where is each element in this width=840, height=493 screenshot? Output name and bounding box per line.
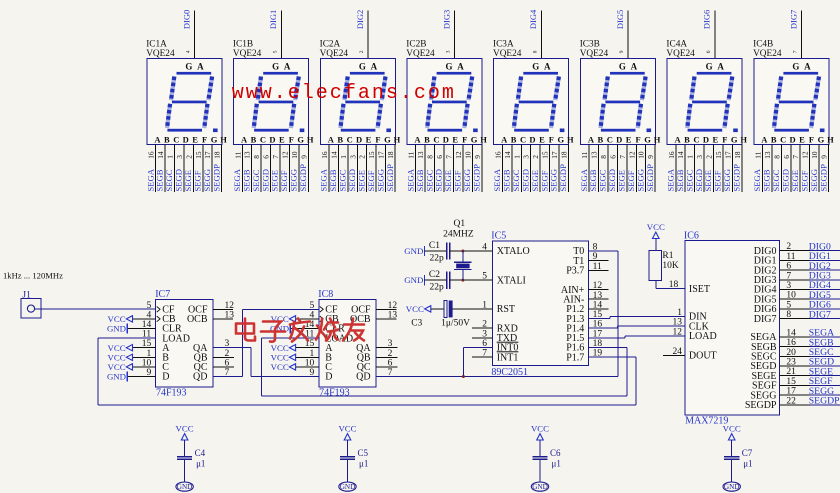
svg-text:DIG3: DIG3 — [442, 10, 452, 29]
svg-text:8: 8 — [252, 155, 261, 159]
svg-text:2: 2 — [705, 155, 714, 159]
svg-text:XTALI: XTALI — [497, 275, 526, 286]
svg-text:DIG1: DIG1 — [268, 10, 278, 29]
svg-text:SEGB: SEGB — [155, 169, 165, 191]
svg-text:74F193: 74F193 — [319, 387, 350, 398]
svg-text:C5: C5 — [358, 448, 369, 458]
svg-text:1: 1 — [166, 155, 175, 159]
svg-text:B: B — [771, 134, 777, 144]
svg-text:A: A — [414, 134, 421, 144]
svg-text:13: 13 — [673, 318, 683, 328]
svg-text:DOUT: DOUT — [689, 351, 717, 362]
svg-text:C: C — [260, 134, 266, 144]
svg-text:G A: G A — [359, 61, 379, 71]
svg-text:18: 18 — [560, 151, 569, 159]
svg-text:DIG2: DIG2 — [355, 10, 365, 29]
svg-text:A: A — [675, 134, 682, 144]
svg-text:D: D — [616, 134, 622, 144]
svg-text:SEGDP: SEGDP — [385, 164, 395, 192]
svg-text:6: 6 — [782, 155, 791, 159]
svg-text:VQE24: VQE24 — [146, 49, 175, 59]
svg-text:10: 10 — [786, 291, 796, 301]
svg-text:IC2B: IC2B — [406, 39, 426, 49]
svg-text:6: 6 — [706, 50, 712, 53]
svg-text:16: 16 — [320, 151, 329, 159]
svg-text:LOAD: LOAD — [689, 331, 717, 342]
svg-text:A: A — [501, 134, 508, 144]
svg-text:12: 12 — [454, 151, 463, 159]
svg-text:13: 13 — [416, 151, 425, 159]
svg-text:IC8: IC8 — [318, 289, 333, 300]
svg-text:H: H — [740, 134, 747, 144]
svg-text:A: A — [241, 134, 248, 144]
svg-text:B: B — [164, 134, 170, 144]
svg-text:18: 18 — [386, 151, 395, 159]
svg-text:D: D — [325, 372, 332, 383]
svg-text:1: 1 — [339, 155, 348, 159]
svg-text:VQE24: VQE24 — [320, 49, 349, 59]
svg-text:G: G — [471, 134, 478, 144]
svg-text:7: 7 — [444, 155, 453, 159]
svg-text:J1: J1 — [22, 291, 31, 301]
svg-text:17: 17 — [723, 151, 732, 159]
svg-text:C2: C2 — [429, 270, 440, 280]
svg-text:C: C — [780, 134, 786, 144]
svg-text:10: 10 — [290, 151, 299, 159]
svg-text:R1: R1 — [662, 251, 673, 261]
svg-text:www.elecfans.com: www.elecfans.com — [232, 82, 456, 105]
svg-text:SEGG: SEGG — [635, 169, 645, 192]
svg-text:B: B — [511, 134, 517, 144]
svg-text:SEGDP: SEGDP — [472, 164, 482, 192]
svg-text:3: 3 — [446, 50, 452, 53]
svg-text:7: 7 — [271, 155, 280, 159]
svg-text:VCC: VCC — [108, 352, 126, 362]
svg-text:μ1: μ1 — [196, 459, 205, 469]
svg-text:SEGG: SEGG — [722, 169, 732, 192]
svg-text:15: 15 — [786, 377, 796, 387]
svg-text:SEGDP: SEGDP — [732, 164, 742, 192]
svg-text:VCC: VCC — [108, 362, 126, 372]
svg-text:DIG4: DIG4 — [528, 9, 538, 29]
svg-text:DIG7: DIG7 — [809, 309, 831, 320]
svg-text:G: G — [384, 134, 391, 144]
svg-text:G: G — [297, 134, 304, 144]
svg-text:H: H — [567, 134, 574, 144]
svg-text:IC1B: IC1B — [233, 39, 253, 49]
svg-text:VCC: VCC — [271, 352, 289, 362]
svg-text:VCC: VCC — [723, 424, 741, 434]
svg-text:D: D — [790, 134, 796, 144]
svg-text:1: 1 — [677, 308, 682, 318]
svg-text:89C2051: 89C2051 — [491, 367, 528, 378]
svg-text:15: 15 — [541, 151, 550, 159]
svg-text:A: A — [328, 134, 335, 144]
svg-text:G A: G A — [272, 61, 292, 71]
svg-text:VCC: VCC — [647, 222, 665, 232]
svg-text:G: G — [644, 134, 651, 144]
svg-text:B: B — [337, 134, 343, 144]
svg-text:GND: GND — [177, 483, 193, 491]
svg-text:IC3A: IC3A — [493, 39, 514, 49]
svg-text:SEGDP: SEGDP — [558, 164, 568, 192]
svg-text:2: 2 — [359, 50, 365, 53]
svg-text:G A: G A — [706, 61, 726, 71]
svg-text:D: D — [356, 134, 362, 144]
svg-text:16: 16 — [667, 151, 676, 159]
svg-text:G A: G A — [185, 61, 205, 71]
svg-text:7: 7 — [786, 271, 791, 281]
svg-text:1: 1 — [686, 155, 695, 159]
svg-text:IC1A: IC1A — [146, 39, 167, 49]
svg-text:A: A — [761, 134, 768, 144]
svg-text:2: 2 — [184, 155, 193, 159]
svg-text:E: E — [279, 134, 285, 144]
svg-text:SEGG: SEGG — [809, 169, 819, 192]
svg-text:4: 4 — [186, 50, 192, 53]
svg-text:P3.7: P3.7 — [566, 266, 584, 277]
svg-text:11: 11 — [754, 151, 763, 158]
svg-text:VQE24: VQE24 — [580, 49, 609, 59]
svg-text:D: D — [529, 134, 535, 144]
svg-text:VQE24: VQE24 — [753, 49, 782, 59]
svg-text:μ1: μ1 — [743, 459, 752, 469]
svg-text:OCB: OCB — [187, 314, 208, 325]
svg-text:VCC: VCC — [271, 343, 289, 353]
svg-text:8: 8 — [772, 155, 781, 159]
svg-text:P1.7: P1.7 — [566, 352, 584, 363]
svg-text:10: 10 — [810, 151, 819, 159]
svg-text:C6: C6 — [550, 448, 561, 458]
svg-text:G: G — [211, 134, 218, 144]
svg-text:6: 6 — [435, 155, 444, 159]
svg-text:IC7: IC7 — [155, 289, 170, 300]
svg-text:VQE24: VQE24 — [493, 49, 522, 59]
svg-text:1kHz ... 120MHz: 1kHz ... 120MHz — [3, 270, 63, 280]
svg-text:SEGDP: SEGDP — [745, 400, 777, 411]
svg-text:8: 8 — [426, 155, 435, 159]
svg-text:B: B — [597, 134, 603, 144]
svg-text:GND: GND — [404, 246, 423, 256]
svg-text:8: 8 — [599, 155, 608, 159]
svg-text:GND: GND — [340, 483, 356, 491]
svg-text:14: 14 — [503, 151, 512, 159]
svg-text:11: 11 — [233, 151, 242, 158]
svg-text:9: 9 — [646, 155, 655, 159]
svg-text:F: F — [722, 134, 727, 144]
svg-text:G: G — [731, 134, 738, 144]
svg-text:D: D — [269, 134, 275, 144]
svg-text:E: E — [626, 134, 632, 144]
svg-text:B: B — [251, 134, 257, 144]
svg-text:SEGE: SEGE — [270, 170, 280, 192]
svg-text:IC3B: IC3B — [580, 39, 600, 49]
svg-text:9: 9 — [473, 155, 482, 159]
svg-text:21: 21 — [786, 367, 796, 377]
svg-text:14: 14 — [676, 151, 685, 159]
svg-text:G: G — [818, 134, 825, 144]
svg-text:SEGB: SEGB — [588, 169, 598, 191]
svg-text:11: 11 — [407, 151, 416, 158]
svg-text:SEGG: SEGG — [462, 169, 472, 192]
svg-text:3: 3 — [695, 155, 704, 159]
svg-text:12: 12 — [673, 327, 683, 337]
svg-text:D: D — [703, 134, 709, 144]
svg-text:VQE24: VQE24 — [406, 49, 435, 59]
svg-text:E: E — [799, 134, 805, 144]
svg-text:IC4B: IC4B — [753, 39, 773, 49]
svg-text:E: E — [452, 134, 458, 144]
svg-text:D: D — [183, 134, 189, 144]
svg-text:H: H — [654, 134, 661, 144]
svg-text:2: 2 — [531, 155, 540, 159]
svg-text:GND: GND — [107, 372, 126, 382]
svg-text:3: 3 — [175, 155, 184, 159]
svg-text:SEGG: SEGG — [289, 169, 299, 192]
svg-text:H: H — [480, 134, 487, 144]
svg-text:VQE24: VQE24 — [233, 49, 262, 59]
svg-text:DIG0: DIG0 — [181, 10, 191, 29]
svg-text:VCC: VCC — [108, 314, 126, 324]
svg-text:17: 17 — [550, 151, 559, 159]
svg-text:C4: C4 — [195, 448, 206, 458]
svg-text:G A: G A — [619, 61, 639, 71]
svg-text:1: 1 — [512, 155, 521, 159]
svg-text:7: 7 — [791, 155, 800, 159]
svg-text:μ1: μ1 — [359, 459, 368, 469]
svg-text:A: A — [154, 134, 161, 144]
svg-text:SEGE: SEGE — [530, 170, 540, 192]
svg-text:SEGB: SEGB — [415, 169, 425, 191]
svg-text:15: 15 — [194, 151, 203, 159]
svg-text:DIG7: DIG7 — [788, 10, 798, 29]
svg-text:3: 3 — [786, 281, 791, 291]
svg-text:6: 6 — [262, 155, 271, 159]
svg-text:5: 5 — [146, 301, 151, 311]
svg-text:SEGDP: SEGDP — [645, 164, 655, 192]
svg-text:μ1: μ1 — [552, 459, 561, 469]
svg-text:16: 16 — [147, 151, 156, 159]
svg-text:22p: 22p — [430, 283, 445, 293]
svg-text:E: E — [192, 134, 198, 144]
svg-text:10: 10 — [637, 151, 646, 159]
svg-text:DIG5: DIG5 — [615, 10, 625, 29]
svg-text:8: 8 — [786, 310, 791, 320]
svg-text:B: B — [424, 134, 430, 144]
svg-text:IC6: IC6 — [684, 231, 699, 242]
svg-text:XTALO: XTALO — [497, 246, 530, 257]
svg-text:C: C — [607, 134, 613, 144]
svg-text:H: H — [307, 134, 314, 144]
svg-text:F: F — [462, 134, 467, 144]
svg-text:IC5: IC5 — [491, 230, 506, 241]
svg-text:F: F — [202, 134, 207, 144]
svg-text:11: 11 — [580, 151, 589, 158]
svg-text:GND: GND — [107, 324, 126, 334]
svg-text:14: 14 — [786, 328, 796, 338]
svg-text:G A: G A — [792, 61, 812, 71]
svg-text:7: 7 — [618, 155, 627, 159]
svg-text:B: B — [684, 134, 690, 144]
svg-text:17: 17 — [377, 151, 386, 159]
svg-text:16: 16 — [786, 338, 796, 348]
svg-text:SEGE: SEGE — [183, 170, 193, 192]
svg-text:VCC: VCC — [406, 304, 424, 314]
svg-text:INT1: INT1 — [497, 352, 519, 363]
svg-text:23: 23 — [786, 358, 796, 368]
svg-text:F: F — [549, 134, 554, 144]
svg-text:17: 17 — [786, 387, 796, 397]
svg-text:12: 12 — [627, 151, 636, 159]
svg-text:ISET: ISET — [689, 284, 710, 295]
svg-text:SEGE: SEGE — [443, 170, 453, 192]
svg-text:SEGG: SEGG — [202, 169, 212, 192]
svg-text:DIG7: DIG7 — [754, 314, 777, 325]
svg-text:E: E — [366, 134, 372, 144]
svg-text:IC2A: IC2A — [320, 39, 341, 49]
svg-text:10K: 10K — [662, 261, 679, 271]
svg-text:RST: RST — [497, 304, 515, 315]
svg-text:7: 7 — [793, 50, 799, 53]
svg-text:1μ/50V: 1μ/50V — [441, 318, 470, 328]
svg-text:GND: GND — [404, 275, 423, 285]
svg-text:12: 12 — [801, 151, 810, 159]
svg-text:SEGDP: SEGDP — [818, 164, 828, 192]
svg-text:2: 2 — [358, 155, 367, 159]
svg-text:9: 9 — [310, 368, 315, 378]
svg-text:18: 18 — [733, 151, 742, 159]
svg-text:14: 14 — [329, 151, 338, 159]
svg-text:SEGE: SEGE — [356, 170, 366, 192]
svg-text:16: 16 — [493, 151, 502, 159]
svg-text:12: 12 — [281, 151, 290, 159]
svg-text:H: H — [827, 134, 834, 144]
svg-text:11: 11 — [786, 252, 795, 262]
svg-text:2: 2 — [786, 242, 791, 252]
svg-text:VCC: VCC — [108, 343, 126, 353]
svg-text:15: 15 — [367, 151, 376, 159]
svg-text:SEGE: SEGE — [703, 170, 713, 192]
svg-text:9: 9 — [299, 155, 308, 159]
svg-text:Q1: Q1 — [454, 219, 466, 229]
svg-text:SEGG: SEGG — [549, 169, 559, 192]
svg-text:3: 3 — [348, 155, 357, 159]
svg-text:14: 14 — [156, 151, 165, 159]
svg-text:GND: GND — [532, 483, 548, 491]
svg-text:D: D — [162, 372, 169, 383]
svg-text:8: 8 — [532, 50, 538, 53]
svg-text:A: A — [588, 134, 595, 144]
svg-text:15: 15 — [714, 151, 723, 159]
svg-text:G: G — [557, 134, 564, 144]
svg-text:VQE24: VQE24 — [666, 49, 695, 59]
svg-text:10: 10 — [463, 151, 472, 159]
svg-text:VCC: VCC — [176, 424, 194, 434]
svg-text:GND: GND — [724, 483, 740, 491]
svg-text:18: 18 — [213, 151, 222, 159]
svg-text:D: D — [443, 134, 449, 144]
svg-text:3: 3 — [522, 155, 531, 159]
svg-text:IC4A: IC4A — [666, 39, 687, 49]
svg-text:F: F — [289, 134, 294, 144]
svg-text:13: 13 — [243, 151, 252, 159]
svg-text:H: H — [220, 134, 227, 144]
svg-text:VCC: VCC — [338, 424, 356, 434]
svg-text:SEGG: SEGG — [375, 169, 385, 192]
svg-text:9: 9 — [619, 50, 625, 53]
svg-text:C1: C1 — [429, 241, 440, 251]
svg-text:SEGB: SEGB — [241, 169, 251, 191]
svg-text:13: 13 — [590, 151, 599, 159]
svg-text:74F193: 74F193 — [156, 387, 187, 398]
svg-text:E: E — [712, 134, 718, 144]
svg-text:6: 6 — [786, 262, 791, 272]
svg-text:QD: QD — [356, 372, 370, 383]
svg-text:VCC: VCC — [271, 362, 289, 372]
svg-text:G A: G A — [532, 61, 552, 71]
svg-text:6: 6 — [608, 155, 617, 159]
svg-text:C: C — [693, 134, 699, 144]
svg-text:QD: QD — [193, 372, 207, 383]
svg-text:SEGB: SEGB — [328, 169, 338, 191]
svg-text:SEGB: SEGB — [675, 169, 685, 191]
svg-text:5: 5 — [786, 300, 791, 310]
svg-text:24MHZ: 24MHZ — [443, 229, 474, 239]
svg-text:SEGB: SEGB — [762, 169, 772, 191]
svg-text:C: C — [520, 134, 526, 144]
svg-text:5: 5 — [272, 50, 278, 53]
svg-text:SEGE: SEGE — [790, 170, 800, 192]
svg-text:SEGE: SEGE — [617, 170, 627, 192]
svg-text:9: 9 — [820, 155, 829, 159]
svg-text:C: C — [347, 134, 353, 144]
svg-text:C7: C7 — [742, 448, 753, 458]
svg-text:13: 13 — [763, 151, 772, 159]
svg-text:5: 5 — [310, 301, 315, 311]
svg-text:SEGB: SEGB — [502, 169, 512, 191]
svg-text:C: C — [173, 134, 179, 144]
svg-text:17: 17 — [203, 151, 212, 159]
svg-text:G A: G A — [446, 61, 466, 71]
svg-text:VCC: VCC — [531, 424, 549, 434]
svg-text:H: H — [394, 134, 401, 144]
svg-text:20: 20 — [786, 348, 796, 358]
svg-text:22: 22 — [786, 396, 796, 406]
svg-text:F: F — [375, 134, 380, 144]
svg-text:F: F — [635, 134, 640, 144]
svg-text:DIG6: DIG6 — [702, 10, 712, 29]
svg-text:SEGDP: SEGDP — [298, 164, 308, 192]
svg-text:22p: 22p — [430, 254, 445, 264]
svg-text:C3: C3 — [411, 318, 422, 328]
svg-text:F: F — [809, 134, 814, 144]
svg-text:SEGDP: SEGDP — [211, 164, 221, 192]
svg-text:C: C — [433, 134, 439, 144]
svg-text:SEGDP: SEGDP — [809, 396, 840, 407]
svg-text:E: E — [539, 134, 545, 144]
